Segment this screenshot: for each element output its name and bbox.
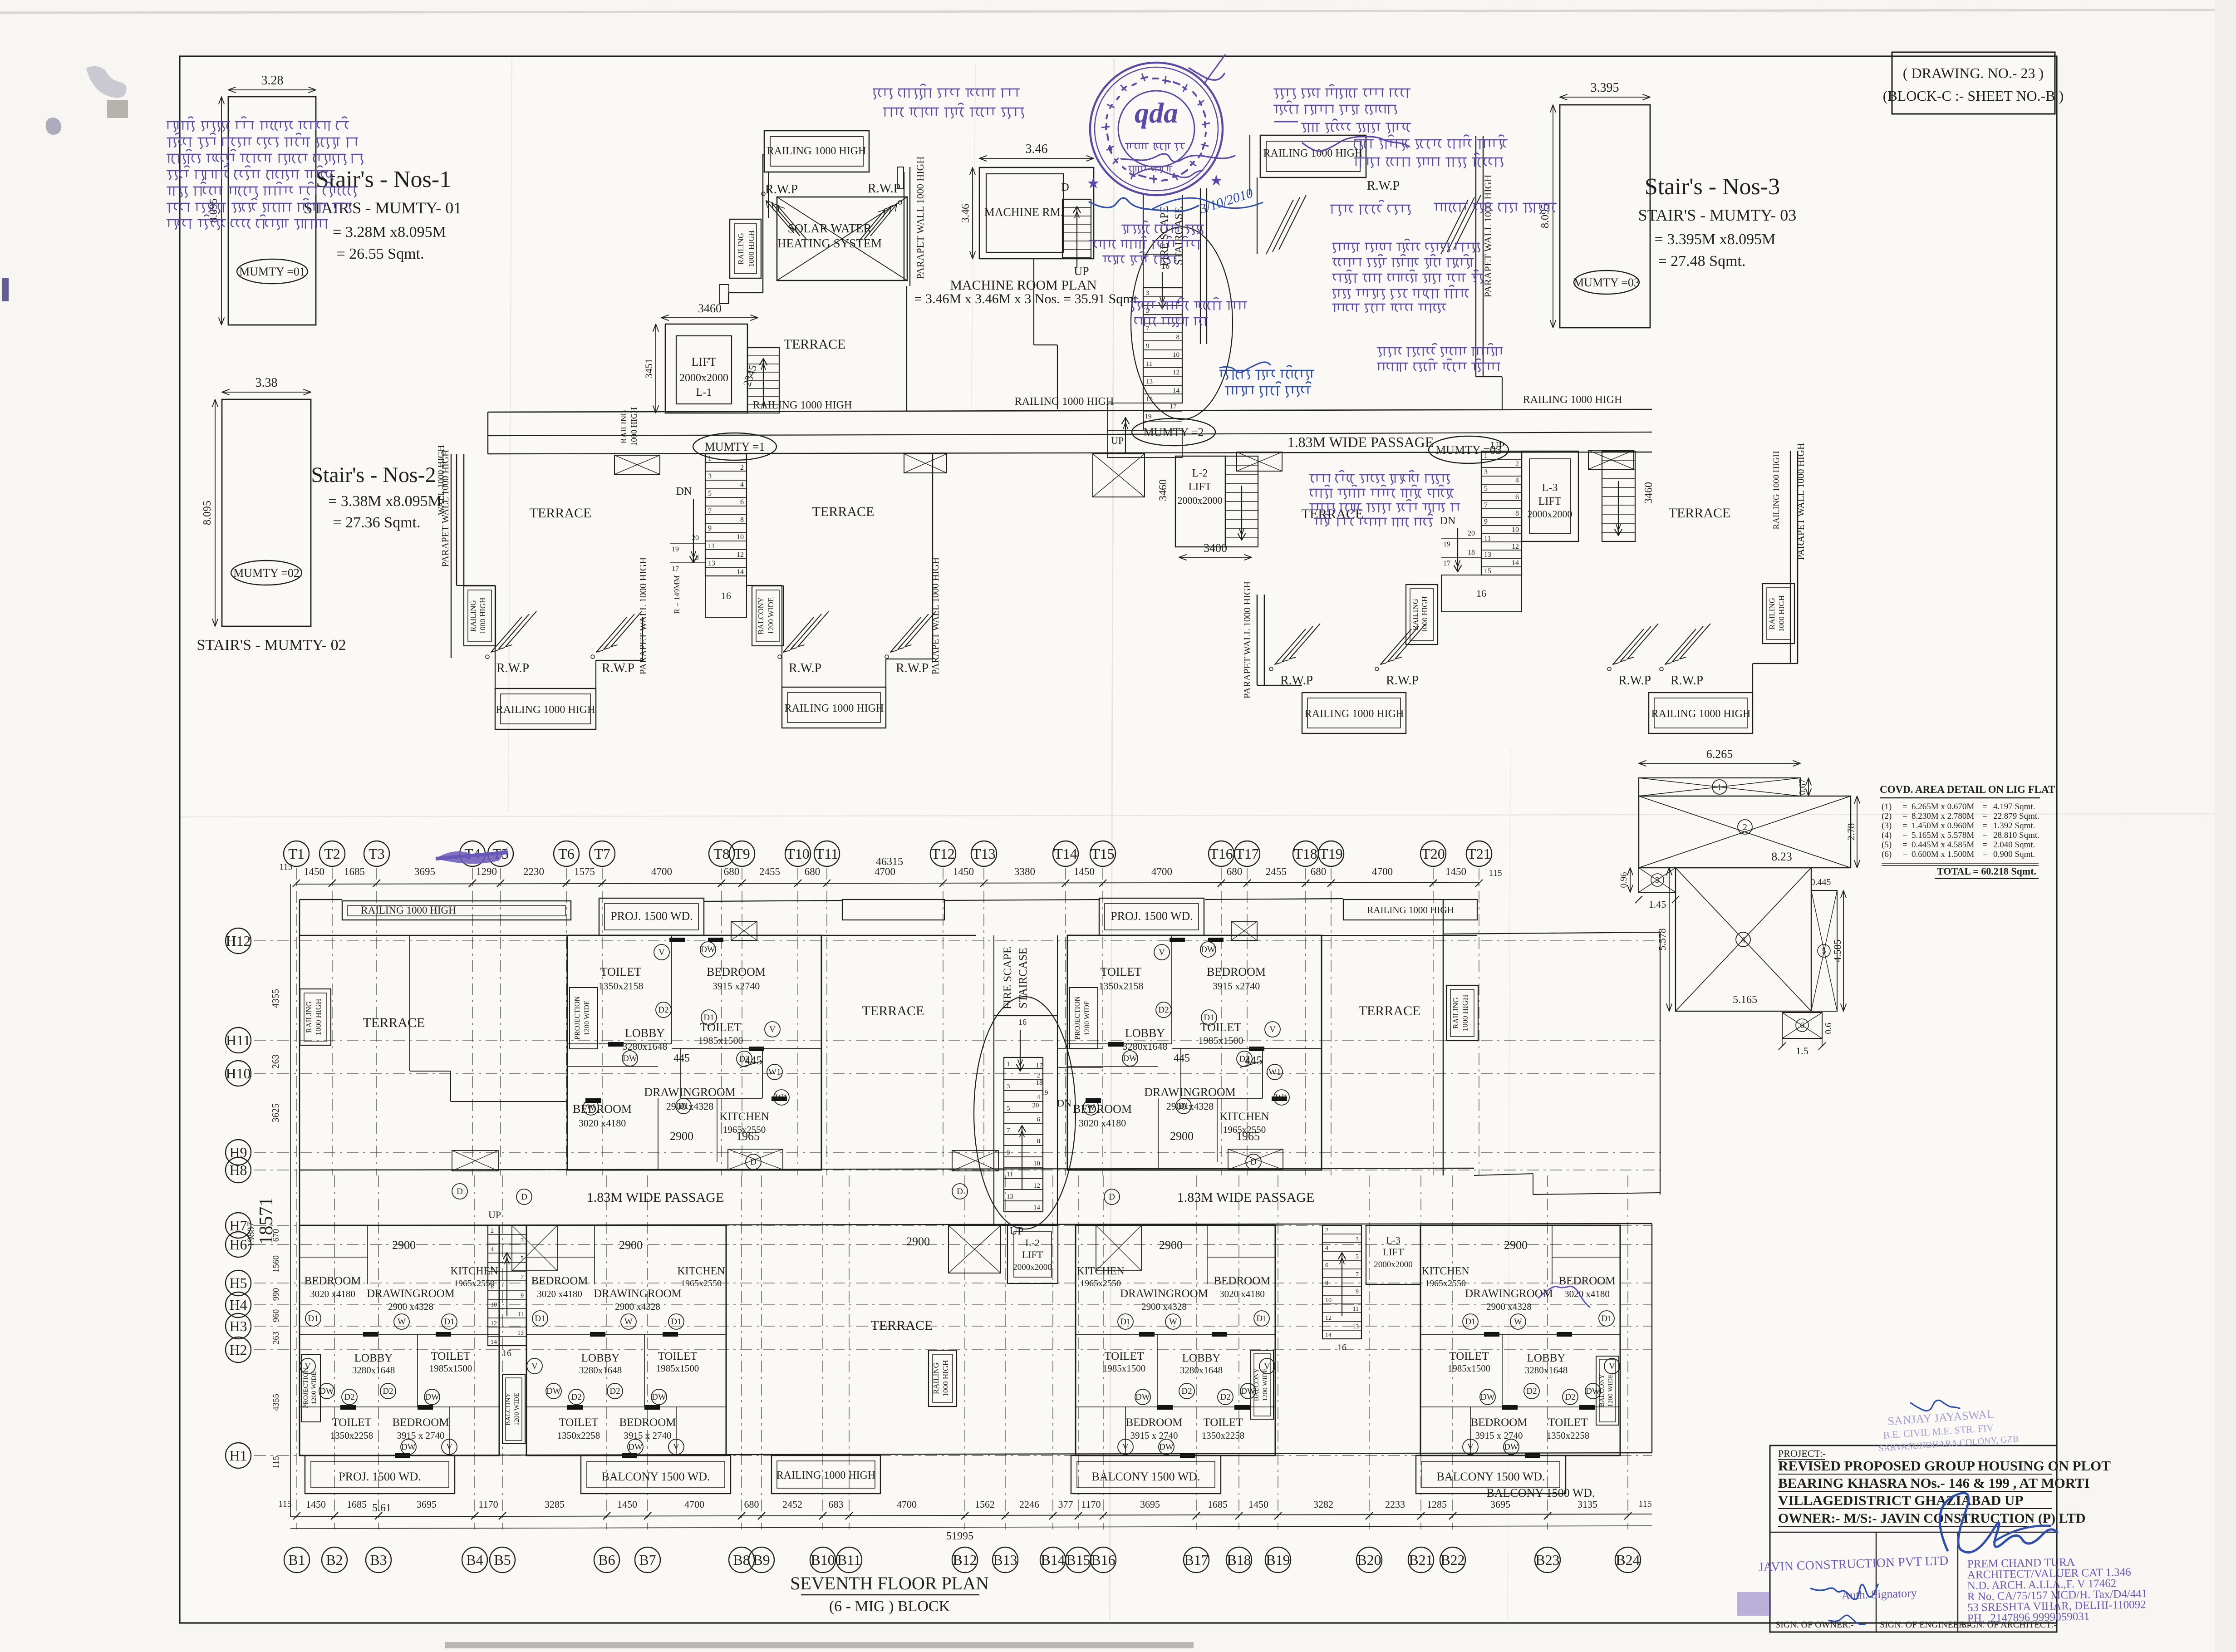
svg-text:W: W <box>624 1317 633 1327</box>
svg-text:680: 680 <box>744 1499 759 1510</box>
svg-text:PARAPET WALL 1000 HIGH: PARAPET WALL 1000 HIGH <box>930 557 941 674</box>
svg-text:18: 18 <box>1468 549 1475 556</box>
svg-text:PROJECTION: PROJECTION <box>574 996 581 1040</box>
svg-text:Stair's - Nos-2: Stair's - Nos-2 <box>311 463 436 487</box>
svg-text:2900 x4328: 2900 x4328 <box>1141 1301 1187 1312</box>
svg-text:RAILING: RAILING <box>305 1001 313 1033</box>
svg-text:1562: 1562 <box>975 1499 995 1510</box>
svg-text:R = 149MM: R = 149MM <box>673 575 681 614</box>
svg-text:3020 x4180: 3020 x4180 <box>537 1288 582 1299</box>
svg-text:B17: B17 <box>1184 1552 1208 1568</box>
svg-text:SOLAR WATER: SOLAR WATER <box>788 221 872 235</box>
svg-text:B15: B15 <box>1066 1552 1090 1568</box>
svg-text:(5): (5) <box>1882 840 1892 850</box>
svg-text:4: 4 <box>1515 477 1519 484</box>
svg-text:1965x2550: 1965x2550 <box>1425 1278 1466 1288</box>
svg-text:46315: 46315 <box>876 856 903 868</box>
svg-text:16: 16 <box>502 1348 511 1358</box>
svg-text:1350x2258: 1350x2258 <box>330 1430 373 1441</box>
svg-text:19: 19 <box>1042 1089 1048 1096</box>
svg-text:D1: D1 <box>678 1101 688 1111</box>
svg-text:2: 2 <box>491 1228 494 1234</box>
svg-text:B24: B24 <box>1616 1552 1640 1568</box>
svg-text:1000 HIGH: 1000 HIGH <box>314 999 323 1036</box>
svg-text:1290: 1290 <box>476 866 497 877</box>
svg-text:D: D <box>1109 1192 1115 1202</box>
svg-text:BALCONY: BALCONY <box>505 1393 512 1426</box>
svg-text:2455: 2455 <box>759 866 780 877</box>
svg-text:T7: T7 <box>594 846 610 862</box>
svg-text:MACHINE RM.: MACHINE RM. <box>984 206 1064 219</box>
svg-text:V: V <box>659 948 665 957</box>
svg-text:TERRACE: TERRACE <box>530 506 592 521</box>
svg-text:OWNER:- M/S:- JAVIN CONSTRUCTI: OWNER:- M/S:- JAVIN CONSTRUCTION (P) LTD <box>1778 1511 2086 1526</box>
svg-text:B1: B1 <box>288 1552 305 1568</box>
svg-text:2900 x4328: 2900 x4328 <box>1486 1301 1532 1312</box>
svg-text:W: W <box>398 1317 406 1327</box>
svg-text:DW: DW <box>652 1392 666 1402</box>
svg-text:DW: DW <box>1135 1392 1150 1402</box>
svg-text:4700: 4700 <box>1151 866 1172 877</box>
svg-text:22.879 Sqmt.: 22.879 Sqmt. <box>1993 811 2039 821</box>
svg-text:D2: D2 <box>383 1386 393 1396</box>
svg-text:2900: 2900 <box>906 1235 930 1248</box>
svg-text:6: 6 <box>1037 1116 1041 1123</box>
svg-text:H9: H9 <box>229 1144 247 1160</box>
svg-text:SEVENTH FLOOR PLAN: SEVENTH FLOOR PLAN <box>790 1573 989 1593</box>
svg-text:TERRACE: TERRACE <box>812 504 875 519</box>
svg-text:13: 13 <box>1007 1193 1013 1200</box>
svg-text:1000 HIGH: 1000 HIGH <box>941 1360 950 1397</box>
svg-text:3280x1648: 3280x1648 <box>1180 1365 1223 1376</box>
svg-text:2000x2000: 2000x2000 <box>679 372 728 384</box>
svg-text:RAILING 1000 HIGH: RAILING 1000 HIGH <box>776 1470 876 1481</box>
svg-text:= 3.38M x8.095M: = 3.38M x8.095M <box>328 493 442 510</box>
svg-text:= 27.48 Sqmt.: = 27.48 Sqmt. <box>1658 253 1746 270</box>
svg-text:TOILET: TOILET <box>1449 1350 1489 1362</box>
svg-text:14: 14 <box>1033 1204 1041 1211</box>
svg-text:=: = <box>1982 831 1987 840</box>
svg-text:MUMTY =03: MUMTY =03 <box>1573 276 1640 289</box>
svg-text:1350x2158: 1350x2158 <box>599 980 644 992</box>
svg-text:D: D <box>957 1187 963 1196</box>
svg-text:PARAPET WALL 1000 HIGH: PARAPET WALL 1000 HIGH <box>440 450 451 567</box>
svg-text:LIFT: LIFT <box>1022 1249 1043 1260</box>
svg-text:T16: T16 <box>1209 846 1233 862</box>
svg-text:11: 11 <box>1353 1306 1359 1313</box>
svg-text:D1: D1 <box>535 1314 545 1323</box>
svg-text:2900: 2900 <box>619 1239 643 1252</box>
svg-text:B14: B14 <box>1041 1552 1065 1568</box>
svg-text:B21: B21 <box>1409 1552 1433 1568</box>
svg-text:3280x1648: 3280x1648 <box>1525 1365 1568 1376</box>
svg-text:3280x1648: 3280x1648 <box>579 1365 622 1376</box>
svg-text:V: V <box>1467 1442 1474 1452</box>
svg-text:14: 14 <box>491 1339 497 1346</box>
svg-text:BEDROOM: BEDROOM <box>1073 1102 1132 1116</box>
svg-text:MACHINE ROOM PLAN: MACHINE ROOM PLAN <box>950 278 1096 293</box>
svg-text:V: V <box>1159 948 1165 957</box>
svg-text:51995: 51995 <box>946 1530 973 1542</box>
svg-text:B10: B10 <box>811 1552 835 1568</box>
svg-text:R.W.P: R.W.P <box>789 661 821 675</box>
svg-text:TOILET: TOILET <box>1203 1416 1243 1429</box>
svg-text:1: 1 <box>708 455 712 462</box>
svg-text:683: 683 <box>829 1499 844 1510</box>
svg-text:B8: B8 <box>733 1552 750 1568</box>
svg-text:R.W.P: R.W.P <box>896 661 929 675</box>
svg-text:1965: 1965 <box>1236 1130 1260 1143</box>
svg-text:1200 WIDE: 1200 WIDE <box>513 1393 521 1426</box>
svg-text:(BLOCK-C :- SHEET NO.-B ): (BLOCK-C :- SHEET NO.-B ) <box>1883 88 2064 104</box>
svg-text:4: 4 <box>740 481 744 489</box>
svg-text:B22: B22 <box>1440 1552 1464 1568</box>
svg-text:2452: 2452 <box>782 1499 802 1510</box>
svg-text:1.45: 1.45 <box>1649 899 1666 910</box>
svg-text:D1: D1 <box>1204 1013 1214 1023</box>
svg-text:7: 7 <box>1356 1271 1359 1278</box>
svg-text:1985x1500: 1985x1500 <box>1103 1363 1146 1374</box>
svg-text:3400: 3400 <box>1204 541 1227 555</box>
svg-text:13: 13 <box>1146 378 1153 385</box>
svg-text:1560: 1560 <box>271 1255 281 1273</box>
svg-text:20: 20 <box>1468 530 1475 537</box>
svg-text:D2: D2 <box>344 1392 354 1402</box>
svg-text:T9: T9 <box>734 846 750 862</box>
svg-text:1: 1 <box>1007 1061 1010 1068</box>
svg-text:28.810 Sqmt.: 28.810 Sqmt. <box>1993 831 2039 840</box>
svg-text:13: 13 <box>517 1330 524 1337</box>
svg-text:=: = <box>1902 840 1907 850</box>
svg-text:UP: UP <box>1111 435 1124 446</box>
svg-text:1200 WIDE: 1200 WIDE <box>583 1000 591 1035</box>
svg-text:4700: 4700 <box>684 1499 704 1510</box>
svg-text:T3: T3 <box>369 846 385 862</box>
svg-text:9: 9 <box>1146 343 1150 350</box>
svg-text:1.83M WIDE PASSAGE: 1.83M WIDE PASSAGE <box>587 1190 724 1205</box>
svg-text:20: 20 <box>1032 1102 1039 1109</box>
svg-text:BEDROOM: BEDROOM <box>304 1275 361 1287</box>
svg-text:1000 HIGH: 1000 HIGH <box>478 598 487 634</box>
svg-text:=: = <box>1982 802 1987 811</box>
svg-text:PROJECTION: PROJECTION <box>1074 996 1081 1040</box>
svg-text:16: 16 <box>721 590 731 601</box>
svg-text:H12: H12 <box>226 933 251 949</box>
svg-text:B2: B2 <box>326 1552 343 1568</box>
svg-text:=: = <box>1982 840 1987 850</box>
svg-text:11: 11 <box>518 1311 524 1318</box>
svg-text:12: 12 <box>1512 543 1519 551</box>
svg-text:Auth. Signatory: Auth. Signatory <box>1841 1586 1917 1602</box>
svg-text:W1: W1 <box>775 1093 787 1102</box>
svg-text:D2: D2 <box>609 1386 620 1396</box>
svg-text:3020 x4180: 3020 x4180 <box>1219 1288 1265 1299</box>
svg-text:377: 377 <box>1058 1499 1073 1510</box>
svg-text:0.445M x 4.585M: 0.445M x 4.585M <box>1912 840 1974 850</box>
svg-text:2000x2000: 2000x2000 <box>1374 1260 1413 1269</box>
svg-text:1985x1500: 1985x1500 <box>698 1035 743 1046</box>
svg-text:19: 19 <box>1443 541 1450 548</box>
svg-text:BALCONY 1500 WD.: BALCONY 1500 WD. <box>1091 1470 1200 1483</box>
svg-text:3280x1648: 3280x1648 <box>352 1365 395 1376</box>
svg-text:2900 x4328: 2900 x4328 <box>615 1301 660 1312</box>
svg-text:15: 15 <box>1484 567 1491 575</box>
svg-text:18: 18 <box>692 554 699 561</box>
svg-text:9: 9 <box>521 1293 524 1299</box>
svg-text:RAILING 1000 HIGH: RAILING 1000 HIGH <box>1651 708 1751 720</box>
svg-text:=: = <box>1902 802 1907 811</box>
svg-text:2246: 2246 <box>1019 1499 1039 1510</box>
svg-text:1170: 1170 <box>478 1499 498 1510</box>
svg-text:7: 7 <box>1007 1127 1010 1134</box>
svg-text:RAILING 1000 HIGH: RAILING 1000 HIGH <box>767 145 866 157</box>
svg-text:DW: DW <box>1480 1392 1495 1402</box>
svg-text:MUMTY =2: MUMTY =2 <box>1144 426 1204 439</box>
svg-text:8.23: 8.23 <box>1771 850 1792 863</box>
svg-text:BEDROOM: BEDROOM <box>1125 1416 1182 1429</box>
svg-text:DRAWINGROOM: DRAWINGROOM <box>367 1288 455 1300</box>
svg-text:H11: H11 <box>226 1032 251 1048</box>
svg-text:3695: 3695 <box>1140 1499 1160 1510</box>
svg-text:1200 WIDE: 1200 WIDE <box>1083 1000 1091 1035</box>
svg-text:9: 9 <box>1484 518 1488 526</box>
svg-text:R.W.P: R.W.P <box>1618 674 1651 688</box>
svg-text:12: 12 <box>1325 1315 1332 1322</box>
svg-text:BALCONY 1500 WD.: BALCONY 1500 WD. <box>1436 1470 1545 1483</box>
svg-text:LOBBY: LOBBY <box>1125 1027 1165 1040</box>
svg-text:8: 8 <box>491 1283 494 1290</box>
svg-text:7: 7 <box>521 1274 524 1281</box>
svg-text:V: V <box>1609 1362 1615 1371</box>
svg-text:B16: B16 <box>1091 1552 1115 1568</box>
svg-text:H10: H10 <box>226 1065 251 1082</box>
svg-text:1350x2258: 1350x2258 <box>1547 1430 1590 1441</box>
svg-text:7: 7 <box>1484 501 1488 509</box>
svg-text:W: W <box>1514 1317 1522 1327</box>
svg-text:3: 3 <box>1356 1236 1359 1243</box>
svg-text:3915 x2740: 3915 x2740 <box>1213 980 1260 992</box>
svg-text:TERRACE: TERRACE <box>1359 1003 1421 1018</box>
svg-text:SIGN. OF OWNER:-: SIGN. OF OWNER:- <box>1775 1620 1854 1630</box>
svg-text:20: 20 <box>692 534 699 542</box>
svg-text:D1: D1 <box>1120 1317 1130 1327</box>
svg-text:1965x2550: 1965x2550 <box>681 1278 722 1288</box>
svg-text:UP: UP <box>1010 1225 1024 1237</box>
svg-text:BEARING KHASRA NOs.- 146 & 199: BEARING KHASRA NOs.- 146 & 199 , AT MORT… <box>1778 1475 2090 1491</box>
svg-text:1.83M WIDE PASSAGE: 1.83M WIDE PASSAGE <box>1177 1190 1315 1205</box>
svg-text:KITCHEN: KITCHEN <box>1076 1265 1124 1277</box>
svg-text:3625: 3625 <box>270 1103 281 1122</box>
svg-text:4: 4 <box>1037 1094 1041 1101</box>
svg-text:10: 10 <box>1325 1297 1332 1304</box>
svg-text:RAILING 1000 HIGH: RAILING 1000 HIGH <box>496 704 595 716</box>
svg-text:11: 11 <box>1007 1171 1013 1178</box>
svg-text:680: 680 <box>724 866 740 877</box>
svg-text:6: 6 <box>491 1265 494 1272</box>
svg-text:1: 1 <box>1717 782 1722 792</box>
svg-text:2900 x4328: 2900 x4328 <box>388 1301 433 1312</box>
svg-text:RAILING 1000 HIGH: RAILING 1000 HIGH <box>1305 708 1404 720</box>
svg-text:D2: D2 <box>658 1005 668 1015</box>
svg-text:T20: T20 <box>1421 846 1445 862</box>
svg-text:1285: 1285 <box>1427 1499 1447 1510</box>
svg-text:2: 2 <box>1037 1072 1041 1079</box>
svg-text:= 27.36 Sqmt.: = 27.36 Sqmt. <box>333 514 421 531</box>
svg-text:H4: H4 <box>229 1297 247 1313</box>
svg-text:1000 HIGH: 1000 HIGH <box>1461 995 1469 1032</box>
svg-text:2900: 2900 <box>670 1130 693 1143</box>
svg-text:TERRACE: TERRACE <box>784 337 846 352</box>
svg-text:TOILET: TOILET <box>658 1350 697 1362</box>
svg-text:12: 12 <box>737 551 744 559</box>
svg-text:1450: 1450 <box>1074 866 1095 877</box>
svg-text:V: V <box>446 1442 452 1452</box>
svg-text:11: 11 <box>1146 360 1152 368</box>
svg-text:18: 18 <box>1036 1079 1043 1087</box>
svg-text:=: = <box>1982 821 1987 831</box>
svg-text:3460: 3460 <box>1157 479 1169 501</box>
svg-text:3460: 3460 <box>698 302 722 315</box>
svg-text:1.450M x 0.960M: 1.450M x 0.960M <box>1912 821 1974 831</box>
svg-text:T19: T19 <box>1319 846 1343 862</box>
svg-text:3695: 3695 <box>417 1499 437 1510</box>
svg-text:6: 6 <box>740 498 744 506</box>
svg-text:D1: D1 <box>308 1314 318 1323</box>
svg-text:D2: D2 <box>571 1392 581 1402</box>
svg-text:H2: H2 <box>229 1342 247 1358</box>
svg-text:D1: D1 <box>1256 1314 1267 1323</box>
svg-text:5.578: 5.578 <box>1656 928 1668 951</box>
svg-text:1575: 1575 <box>574 866 595 877</box>
svg-text:RAILING 1000 HIGH: RAILING 1000 HIGH <box>785 703 884 714</box>
svg-text:DRAWINGROOM: DRAWINGROOM <box>1120 1288 1208 1300</box>
svg-text:960: 960 <box>271 1309 281 1323</box>
svg-text:1685: 1685 <box>347 1499 367 1510</box>
svg-text:BEDROOM: BEDROOM <box>1558 1275 1615 1287</box>
svg-text:= 3.395M x8.095M: = 3.395M x8.095M <box>1655 231 1776 248</box>
svg-text:D: D <box>457 1187 463 1196</box>
svg-text:1000 HIGH: 1000 HIGH <box>629 407 639 446</box>
svg-text:LOBBY: LOBBY <box>1527 1352 1566 1364</box>
svg-text:4: 4 <box>491 1246 494 1253</box>
svg-text:3135: 3135 <box>1577 1499 1597 1510</box>
svg-text:R.W.P: R.W.P <box>1367 179 1400 193</box>
svg-text:3695: 3695 <box>414 866 435 877</box>
svg-text:R.W.P: R.W.P <box>1280 674 1313 688</box>
svg-text:DW: DW <box>623 1054 637 1063</box>
svg-text:L-1: L-1 <box>696 387 712 398</box>
svg-text:DW: DW <box>546 1386 561 1396</box>
svg-text:BEDROOM: BEDROOM <box>392 1416 449 1429</box>
svg-text:5.165M x 5.578M: 5.165M x 5.578M <box>1912 831 1974 840</box>
svg-text:D2: D2 <box>1526 1386 1537 1396</box>
svg-text:D2: D2 <box>1565 1392 1575 1402</box>
svg-text:BEDROOM: BEDROOM <box>707 965 766 978</box>
svg-text:W: W <box>1169 1317 1177 1327</box>
svg-text:=: = <box>1982 811 1987 821</box>
svg-text:3282: 3282 <box>1313 1499 1333 1510</box>
svg-text:BALCONY: BALCONY <box>1253 1368 1260 1401</box>
svg-text:2900: 2900 <box>1170 1130 1194 1143</box>
svg-text:TOILET: TOILET <box>1200 1021 1242 1034</box>
svg-text:W1: W1 <box>768 1067 781 1077</box>
svg-text:PARAPET WALL 1000 HIGH: PARAPET WALL 1000 HIGH <box>914 157 926 280</box>
svg-text:1450: 1450 <box>1445 866 1466 877</box>
svg-text:R.W.P: R.W.P <box>1671 674 1703 688</box>
svg-text:1965x2550: 1965x2550 <box>454 1278 495 1288</box>
svg-text:14: 14 <box>1173 387 1180 394</box>
svg-text:T11: T11 <box>816 846 838 862</box>
svg-text:(6 - MIG ) BLOCK: (6 - MIG ) BLOCK <box>829 1598 950 1615</box>
svg-text:19887: 19887 <box>245 1222 256 1247</box>
svg-text:=: = <box>1902 831 1907 840</box>
svg-text:UP: UP <box>488 1209 501 1220</box>
svg-text:LOBBY: LOBBY <box>1182 1352 1221 1364</box>
svg-text:PARAPET WALL 1000 HIGH: PARAPET WALL 1000 HIGH <box>638 557 649 674</box>
svg-text:RAILING 1000 HIGH: RAILING 1000 HIGH <box>361 905 456 916</box>
svg-text:D2: D2 <box>1158 1005 1169 1015</box>
svg-text:PARAPET WALL 1000 HIGH: PARAPET WALL 1000 HIGH <box>1482 175 1494 298</box>
svg-text:B4: B4 <box>466 1552 483 1568</box>
svg-text:RAILING 1000 HIGH: RAILING 1000 HIGH <box>1523 394 1622 406</box>
svg-text:1685: 1685 <box>344 866 365 877</box>
svg-text:TOILET: TOILET <box>1104 1350 1144 1362</box>
svg-text:1450: 1450 <box>617 1499 637 1510</box>
svg-text:W: W <box>587 1103 595 1112</box>
svg-text:D2: D2 <box>1220 1392 1230 1402</box>
svg-text:5.61: 5.61 <box>372 1502 391 1514</box>
svg-text:680: 680 <box>805 866 821 877</box>
svg-text:1985x1500: 1985x1500 <box>1448 1363 1491 1374</box>
svg-text:0.600M x 1.500M: 0.600M x 1.500M <box>1912 850 1974 859</box>
svg-text:LOBBY: LOBBY <box>354 1352 393 1364</box>
svg-text:STAIRCASE: STAIRCASE <box>1017 948 1029 1008</box>
svg-text:6: 6 <box>1800 1021 1804 1030</box>
svg-text:(3): (3) <box>1882 821 1892 831</box>
svg-text:L-2: L-2 <box>1025 1237 1040 1249</box>
svg-text:5: 5 <box>1007 1105 1010 1112</box>
svg-text:DW: DW <box>1123 1054 1137 1063</box>
svg-text:D1: D1 <box>444 1317 454 1327</box>
svg-text:10: 10 <box>1173 351 1179 359</box>
svg-text:3020 x4180: 3020 x4180 <box>1564 1288 1610 1299</box>
svg-text:2: 2 <box>1515 460 1519 468</box>
svg-text:10: 10 <box>1033 1160 1040 1167</box>
svg-text:H5: H5 <box>229 1275 247 1291</box>
svg-text:D: D <box>1061 182 1069 193</box>
svg-text:(4): (4) <box>1882 831 1892 840</box>
svg-text:LIFT: LIFT <box>1538 496 1562 507</box>
svg-text:2900: 2900 <box>392 1239 416 1252</box>
svg-text:10: 10 <box>491 1302 497 1308</box>
svg-text:=: = <box>1902 811 1907 821</box>
svg-text:1200 WIDE: 1200 WIDE <box>1607 1374 1614 1407</box>
svg-text:MUMTY =01: MUMTY =01 <box>239 265 305 278</box>
svg-text:KITCHEN: KITCHEN <box>1219 1111 1269 1123</box>
svg-text:1000 HIGH: 1000 HIGH <box>1420 596 1429 633</box>
svg-text:W1: W1 <box>1268 1067 1281 1077</box>
svg-text:DRAWINGROOM: DRAWINGROOM <box>594 1288 682 1300</box>
svg-text:8.230M x 2.780M: 8.230M x 2.780M <box>1912 811 1974 821</box>
svg-text:115: 115 <box>279 862 292 872</box>
svg-text:TOILET: TOILET <box>332 1416 371 1429</box>
svg-text:17: 17 <box>1170 403 1177 410</box>
svg-text:DN: DN <box>1057 1097 1071 1109</box>
svg-text:445: 445 <box>1174 1052 1190 1064</box>
svg-text:1450: 1450 <box>306 1499 326 1510</box>
svg-text:3020 x4180: 3020 x4180 <box>579 1117 626 1129</box>
svg-text:PROJ. 1500 WD.: PROJ. 1500 WD. <box>1111 910 1193 923</box>
